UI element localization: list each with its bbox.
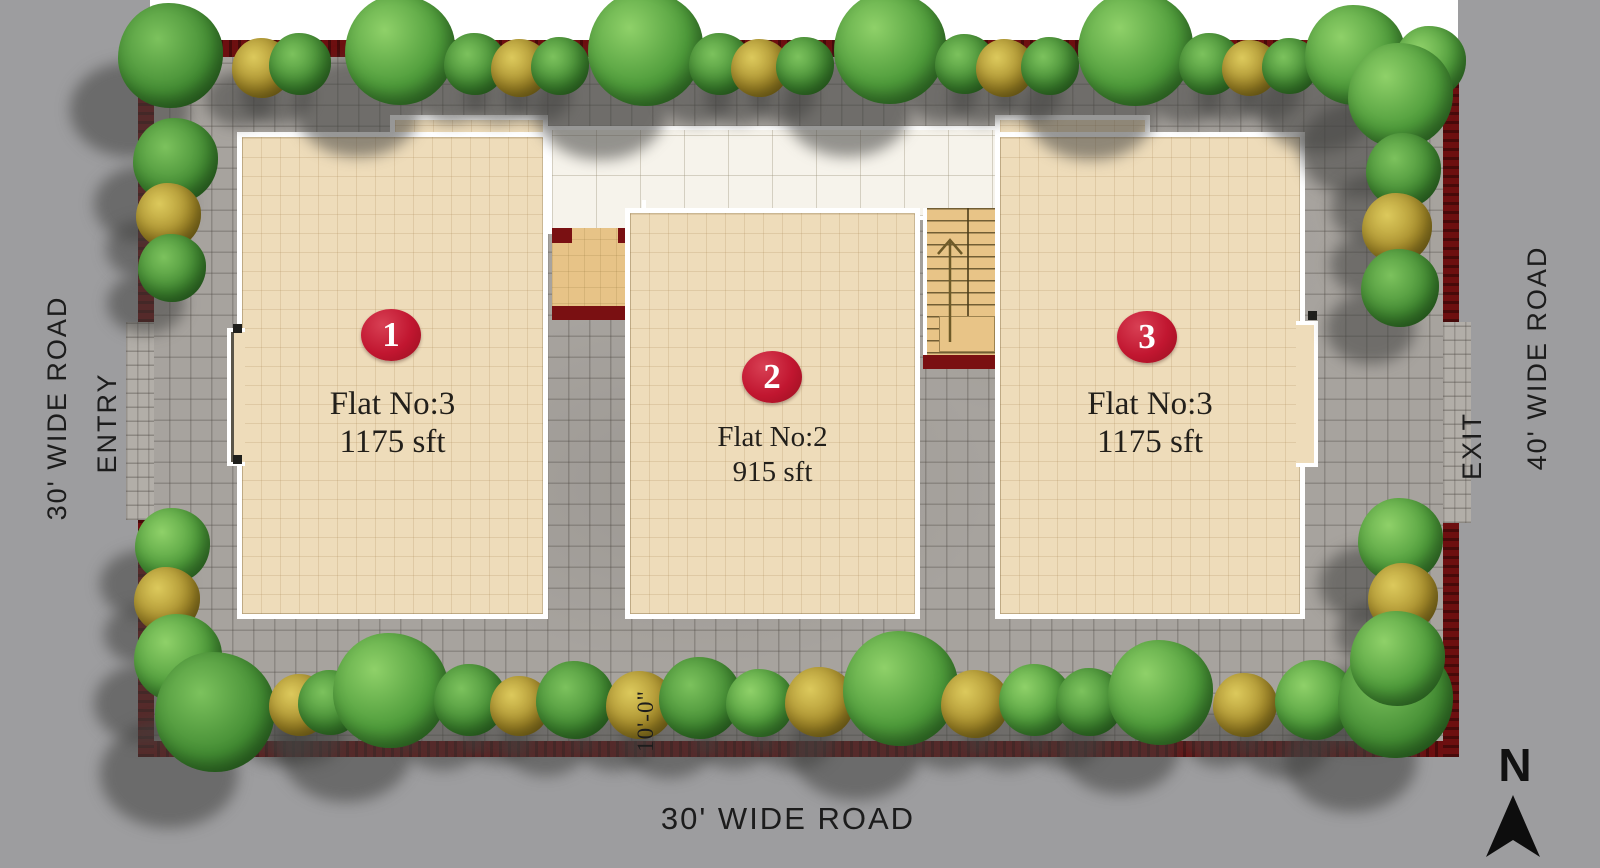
boundary-wall-bottom [148,741,1458,757]
right-road-label: 40' WIDE ROAD [1522,198,1552,518]
left-road-label: 30' WIDE ROAD [43,258,71,558]
flat-1-area: 1175 sft [237,424,548,462]
flat-3-area: 1175 sft [995,424,1305,462]
setback-dimension-label: 10'-0" [633,651,659,791]
staircase-up-arrow-icon [933,236,967,346]
flat-3-badge: 3 [1117,311,1177,363]
site-plan: 1 Flat No:3 1175 sft 2 Flat No:2 915 sft… [0,0,1600,868]
flat-block-3 [995,132,1305,619]
north-arrow-icon [1478,795,1548,861]
boundary-wall-left-lower [138,520,154,757]
door-marker [233,324,242,333]
flat-block-1 [237,132,548,619]
flat-1-name: Flat No:3 [237,386,548,424]
porch-pillar-left [552,228,572,243]
flat-3-name: Flat No:3 [995,386,1305,424]
entry-gate-driveway [126,322,154,520]
boundary-wall-top [148,40,1458,57]
boundary-wall-left-upper [138,40,154,322]
bottom-road-label: 30' WIDE ROAD [538,801,1038,837]
boundary-wall-right-lower [1443,523,1459,757]
north-label: N [1480,738,1550,792]
flat-block-2 [625,208,920,619]
staircase-divider [967,208,969,326]
flat-2-name: Flat No:2 [625,421,920,454]
boundary-wall-right-upper [1443,40,1459,322]
entry-label: ENTRY [93,323,121,523]
flat-2-badge: 2 [742,351,802,403]
door-marker [1308,311,1317,320]
exit-label: EXIT [1458,346,1486,546]
flat-2-area: 915 sft [625,456,920,489]
flat-1-badge: 1 [361,309,421,361]
